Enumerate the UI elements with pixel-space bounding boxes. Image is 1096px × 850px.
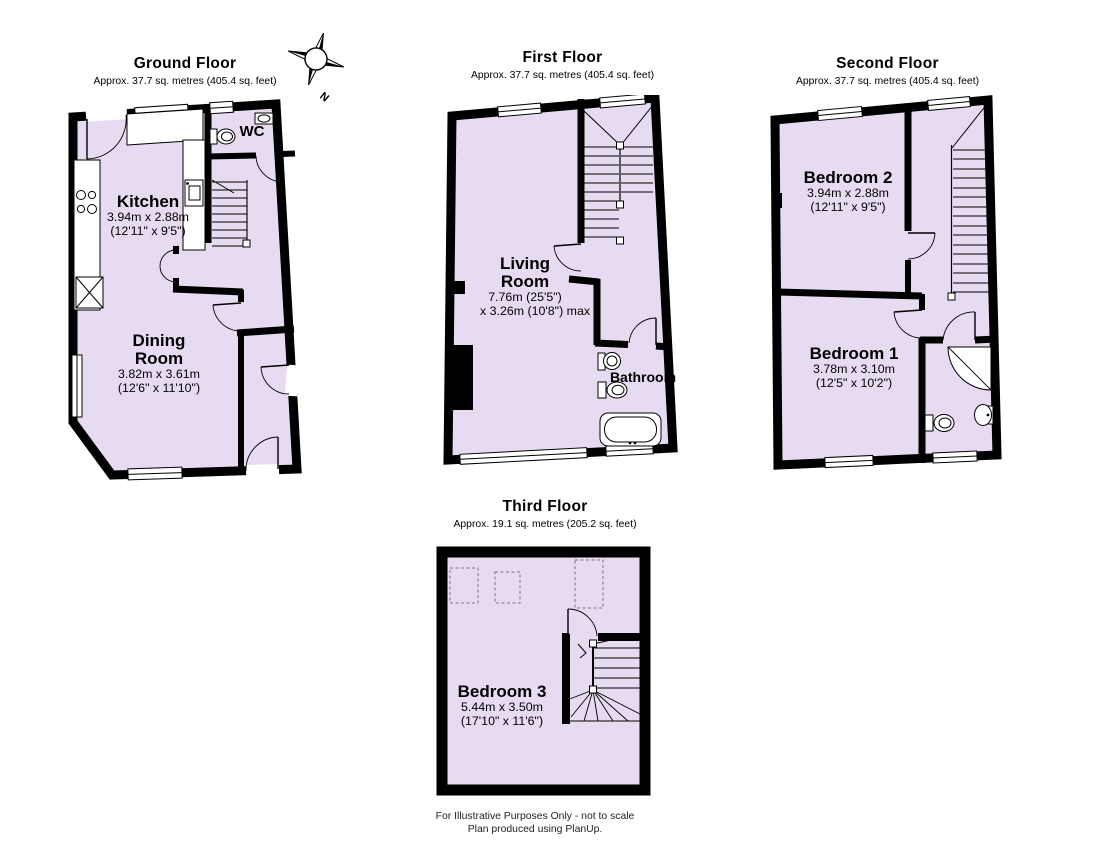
floor-title: Ground Floor bbox=[60, 55, 310, 73]
room-label-bedroom-1: Bedroom 1 3.78m x 3.10m (12'5" x 10'2") bbox=[810, 345, 899, 390]
floor-area-subtitle: Approx. 37.7 sq. metres (405.4 sq. feet) bbox=[440, 70, 685, 81]
appliance-icon bbox=[76, 277, 103, 308]
footer-disclaimer: For Illustrative Purposes Only - not to … bbox=[385, 810, 685, 823]
second-floor-plan-drawing bbox=[770, 95, 1005, 475]
first-floor-plan: Living Room 7.76m (25'5") x 3.26m (10'8"… bbox=[440, 95, 685, 475]
floor-title: Second Floor bbox=[770, 55, 1005, 73]
floor-area-subtitle: Approx. 37.7 sq. metres (405.4 sq. feet) bbox=[60, 76, 310, 87]
floor-title: First Floor bbox=[440, 49, 685, 67]
wall-stub bbox=[450, 281, 465, 294]
room-label-bathroom: Bathroom bbox=[610, 368, 676, 386]
floor-area-subtitle: Approx. 37.7 sq. metres (405.4 sq. feet) bbox=[770, 76, 1005, 87]
compass-north-label: N bbox=[317, 90, 331, 104]
room-label-wc: WC bbox=[240, 123, 265, 141]
footer: For Illustrative Purposes Only - not to … bbox=[385, 810, 685, 836]
second-floor-plan: Bedroom 2 3.94m x 2.88m (12'11" x 9'5") … bbox=[770, 95, 1005, 475]
room-label-bedroom-3: Bedroom 3 5.44m x 3.50m (17'10" x 11'6") bbox=[458, 683, 547, 728]
footer-credit: Plan produced using PlanUp. bbox=[385, 823, 685, 836]
outer-walls bbox=[775, 100, 997, 465]
toilet-icon bbox=[210, 129, 235, 144]
wall-stub bbox=[774, 193, 782, 208]
bath-icon bbox=[600, 413, 661, 446]
room-label-kitchen: Kitchen 3.94m x 2.88m (12'11" x 9'5") bbox=[107, 193, 189, 238]
room-label-dining-room: Dining Room 3.82m x 3.61m (12'6" x 11'10… bbox=[114, 332, 204, 395]
third-floor-plan: Bedroom 3 5.44m x 3.50m (17'10" x 11'6") bbox=[430, 540, 660, 805]
ground-floor-plan-drawing bbox=[60, 98, 310, 488]
chimney-breast bbox=[452, 345, 473, 410]
second-floor-section: Second Floor Approx. 37.7 sq. metres (40… bbox=[770, 55, 1005, 480]
floor-title: Third Floor bbox=[430, 498, 660, 516]
third-floor-section: Third Floor Approx. 19.1 sq. metres (205… bbox=[430, 498, 660, 808]
outer-walls bbox=[442, 552, 645, 790]
floorplan-page: N Ground Floor Approx. 37.7 sq. metres (… bbox=[0, 0, 1096, 850]
first-floor-section: First Floor Approx. 37.7 sq. metres (405… bbox=[440, 49, 685, 479]
ground-floor-section: Ground Floor Approx. 37.7 sq. metres (40… bbox=[60, 55, 310, 495]
toilet-icon bbox=[925, 415, 954, 432]
basin-icon bbox=[975, 405, 994, 426]
room-label-bedroom-2: Bedroom 2 3.94m x 2.88m (12'11" x 9'5") bbox=[804, 169, 893, 214]
room-label-living-room: Living Room 7.76m (25'5") x 3.26m (10'8"… bbox=[480, 255, 570, 318]
floor-area-subtitle: Approx. 19.1 sq. metres (205.2 sq. feet) bbox=[430, 519, 660, 530]
third-floor-plan-drawing bbox=[430, 540, 660, 805]
ground-floor-plan: Kitchen 3.94m x 2.88m (12'11" x 9'5") Di… bbox=[60, 98, 310, 488]
